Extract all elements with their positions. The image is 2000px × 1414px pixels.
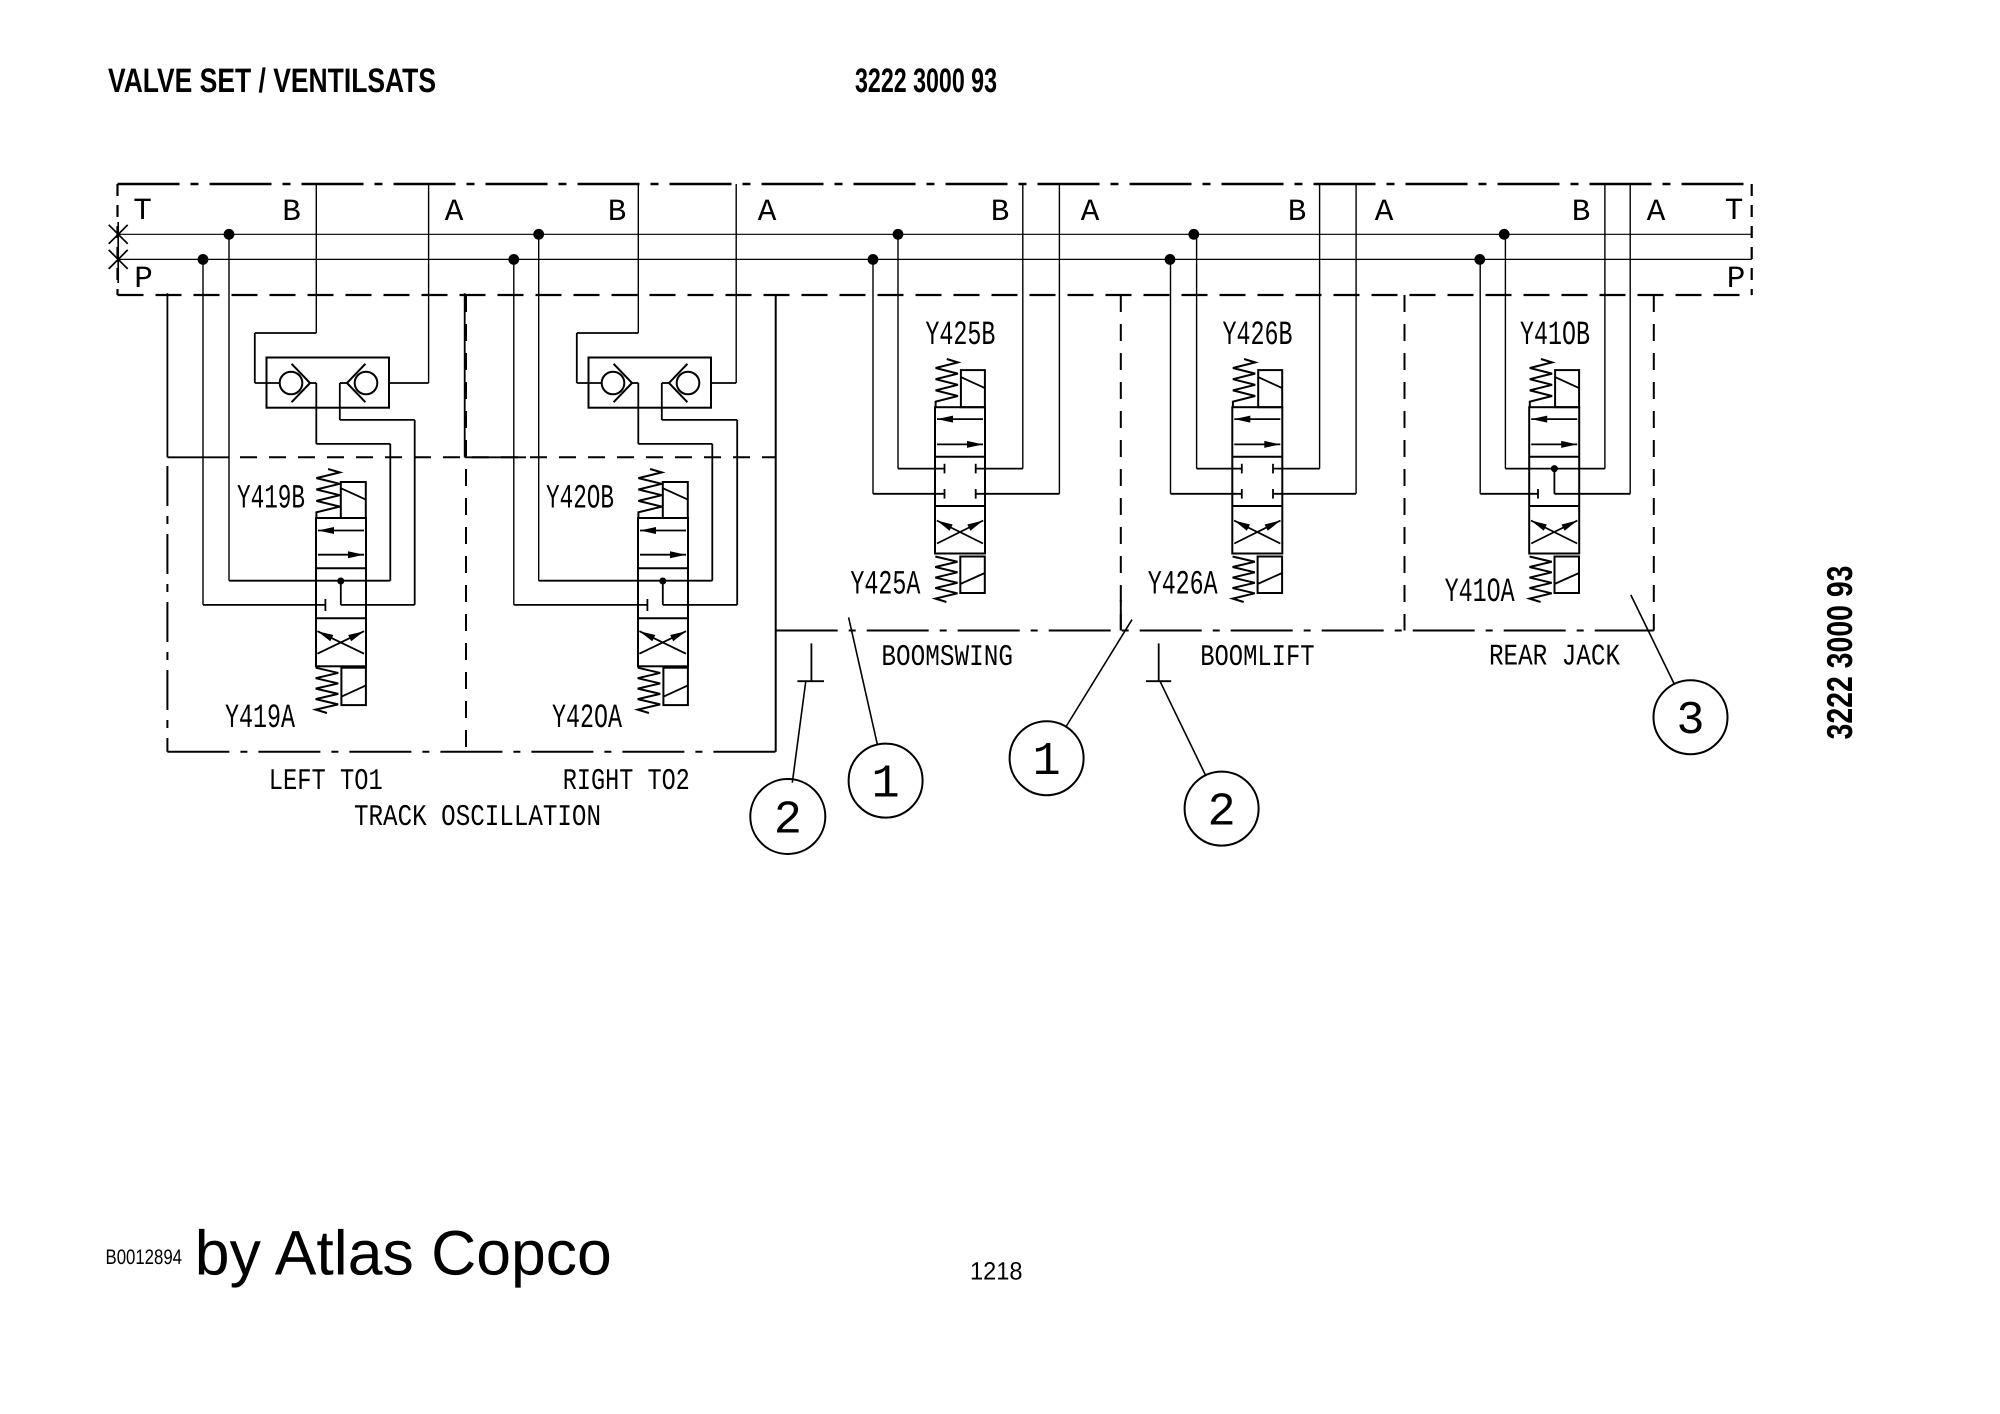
svg-text:3222 3000 93: 3222 3000 93 <box>1819 566 1860 740</box>
svg-text:T: T <box>133 194 152 229</box>
svg-text:TRACK OSCILLATION: TRACK OSCILLATION <box>354 801 601 835</box>
svg-text:A: A <box>445 195 464 230</box>
svg-text:B: B <box>282 195 301 230</box>
svg-text:1218: 1218 <box>970 1258 1023 1286</box>
svg-text:B: B <box>991 195 1010 230</box>
svg-text:by Atlas Copco: by Atlas Copco <box>195 1218 612 1288</box>
svg-text:1: 1 <box>1032 736 1060 789</box>
svg-text:1: 1 <box>871 759 899 812</box>
svg-text:BOOMSWING: BOOMSWING <box>881 641 1013 675</box>
svg-text:A: A <box>1375 195 1394 230</box>
svg-text:2: 2 <box>1207 787 1235 840</box>
svg-text:Y425B: Y425B <box>925 317 995 355</box>
svg-text:T: T <box>1725 194 1744 229</box>
svg-text:B: B <box>1288 195 1307 230</box>
svg-text:Y426A: Y426A <box>1148 567 1218 605</box>
svg-text:Y419A: Y419A <box>225 700 295 738</box>
svg-text:LEFT TO1: LEFT TO1 <box>269 765 383 799</box>
svg-text:3: 3 <box>1676 695 1704 748</box>
svg-text:BOOMLIFT: BOOMLIFT <box>1200 641 1314 675</box>
svg-text:Y42OB: Y42OB <box>546 481 614 519</box>
svg-text:VALVE SET / VENTILSATS: VALVE SET / VENTILSATS <box>108 62 436 100</box>
svg-text:P: P <box>1727 262 1746 297</box>
svg-text:Y41OA: Y41OA <box>1445 574 1515 612</box>
svg-text:B0012894: B0012894 <box>106 1246 183 1269</box>
svg-text:A: A <box>758 195 777 230</box>
svg-text:Y419B: Y419B <box>237 481 305 519</box>
svg-text:RIGHT TO2: RIGHT TO2 <box>563 765 690 799</box>
svg-text:Y41OB: Y41OB <box>1520 317 1590 355</box>
svg-text:Y42OA: Y42OA <box>552 700 622 738</box>
svg-text:P: P <box>134 262 153 297</box>
svg-text:REAR JACK: REAR JACK <box>1489 641 1620 675</box>
svg-text:2: 2 <box>774 795 802 848</box>
svg-text:B: B <box>608 195 627 230</box>
svg-text:3222 3000 93: 3222 3000 93 <box>855 62 997 100</box>
svg-text:Y425A: Y425A <box>850 567 920 605</box>
svg-text:A: A <box>1081 195 1100 230</box>
svg-text:Y426B: Y426B <box>1223 317 1293 355</box>
svg-text:B: B <box>1572 195 1591 230</box>
svg-text:A: A <box>1647 195 1666 230</box>
